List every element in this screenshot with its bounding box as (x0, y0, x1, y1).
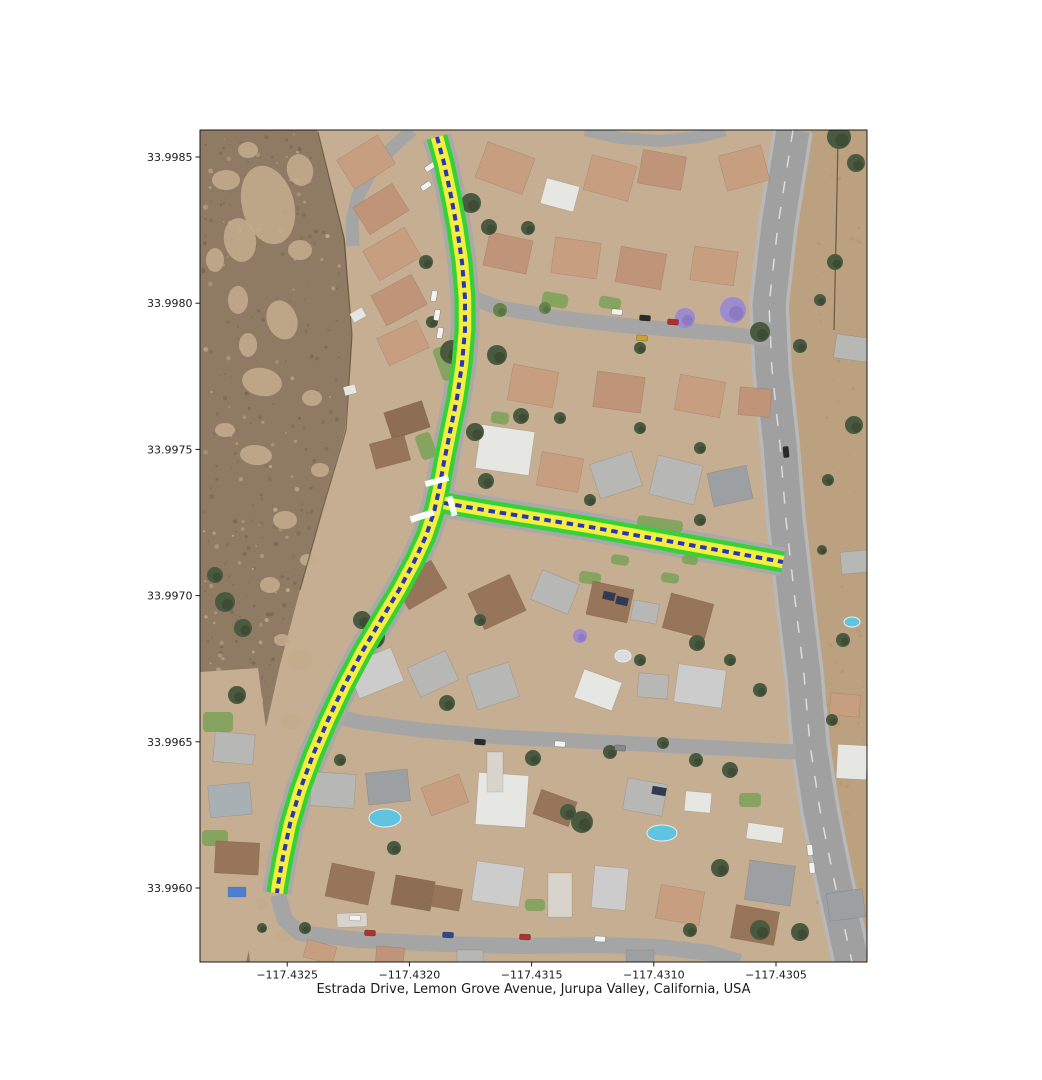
y-tick-label: 33.9970 (147, 590, 193, 603)
tree-shade (531, 756, 540, 765)
rock-outcrop (215, 423, 235, 437)
house-roof (551, 237, 602, 279)
house-roof (655, 884, 704, 925)
tree-shade (821, 549, 827, 555)
house-roof (536, 452, 583, 493)
tree-shade (213, 573, 222, 582)
house-roof (487, 752, 503, 792)
tree-shade (798, 344, 806, 352)
tree-shade (661, 741, 668, 748)
tree-shade (853, 160, 863, 170)
rock-outcrop (274, 634, 290, 646)
rock-outcrop (206, 248, 224, 272)
car (519, 934, 530, 940)
house-roof (471, 861, 524, 907)
tree-shade (728, 658, 735, 665)
house-roof (744, 860, 795, 906)
house-roof (591, 866, 629, 911)
car (349, 915, 360, 921)
tree-shade (579, 819, 591, 831)
x-tick-label: −117.4310 (623, 969, 685, 982)
y-tick-label: 33.9975 (147, 443, 193, 456)
tree-shade (543, 306, 550, 313)
tree-shade (222, 599, 233, 610)
house-roof (615, 246, 667, 289)
tree-shade (392, 846, 400, 854)
rock-outcrop (212, 170, 240, 190)
x-tick-label: −117.4305 (745, 969, 807, 982)
x-tick-label: −117.4315 (501, 969, 563, 982)
rock-outcrop (288, 651, 312, 669)
tree-shade (694, 758, 702, 766)
tree-shade (588, 498, 595, 505)
rock-outcrop (239, 333, 257, 357)
swimming-pool (369, 809, 401, 827)
rock-outcrop (311, 463, 329, 477)
tree-shade (494, 352, 505, 363)
tree-shade (566, 810, 575, 819)
tree-shade (682, 315, 693, 326)
house-roof (365, 769, 410, 805)
house-roof (630, 600, 659, 624)
rock-outcrop (288, 240, 312, 260)
tree-shade (757, 927, 768, 938)
swimming-pool (844, 617, 860, 627)
tree-shade (757, 329, 768, 340)
tree-shade (498, 308, 506, 316)
house-roof (684, 791, 712, 813)
car (639, 315, 650, 322)
house-roof (208, 782, 253, 818)
rock-outcrop (280, 715, 300, 729)
tree-shade (303, 926, 310, 933)
house-roof (674, 374, 726, 417)
tree-shade (234, 692, 244, 702)
house-roof (833, 334, 870, 362)
aerial-map-image (200, 125, 872, 965)
house-roof (623, 778, 668, 816)
house-roof (475, 424, 535, 475)
house-roof (228, 887, 246, 897)
tree-shade (826, 478, 833, 485)
swimming-pool (647, 825, 677, 841)
car (594, 936, 605, 942)
tree-shade (638, 658, 645, 665)
tree-shade (484, 479, 493, 488)
lawn-patch (525, 899, 545, 911)
tree-shade (487, 225, 496, 234)
y-tick-label: 33.9980 (147, 297, 193, 310)
x-tick-label: −117.4325 (256, 969, 318, 982)
house-roof (375, 946, 404, 964)
tree-shade (472, 429, 482, 439)
house-roof (826, 889, 866, 922)
tree-shade (717, 865, 727, 875)
car (783, 446, 790, 457)
house-roof (674, 664, 727, 708)
house-roof (548, 873, 572, 917)
house-roof (690, 246, 738, 286)
house-roof (310, 772, 356, 809)
car (442, 932, 453, 938)
tree-shade (851, 422, 861, 432)
tree-shade (261, 927, 267, 933)
tree-shade (698, 518, 705, 525)
lawn-patch (203, 712, 233, 732)
swimming-pool (615, 650, 631, 662)
car (364, 930, 375, 936)
tree-shade (638, 346, 645, 353)
house-roof (507, 364, 559, 407)
car (667, 319, 678, 326)
house-roof (213, 731, 255, 764)
figure-window: −117.4325−117.4320−117.4315−117.4310−117… (0, 0, 1042, 1080)
car (809, 862, 816, 873)
x-tick-label: −117.4320 (379, 969, 441, 982)
rock-outcrop (273, 511, 297, 529)
car (807, 844, 814, 855)
tree-shade (424, 260, 432, 268)
rock-outcrop (260, 577, 280, 593)
tree-shade (430, 320, 437, 327)
plot-title: Estrada Drive, Lemon Grove Avenue, Jurup… (316, 982, 750, 997)
tree-shade (338, 758, 345, 765)
tree-shade (833, 260, 842, 269)
tree-shade (688, 928, 696, 936)
rock-outcrop (302, 390, 322, 406)
tree-shade (578, 634, 586, 642)
tree-shade (608, 750, 616, 758)
tree-shade (519, 414, 528, 423)
house-roof (738, 387, 772, 418)
house-roof (836, 744, 868, 780)
tree-shade (468, 200, 479, 211)
tree-shade (818, 298, 825, 305)
house-roof (431, 885, 462, 912)
lawn-patch (739, 793, 761, 807)
y-tick-label: 33.9965 (147, 736, 193, 749)
tree-shade (695, 641, 704, 650)
house-roof (637, 149, 686, 190)
car (554, 741, 565, 748)
tree-shade (830, 718, 837, 725)
tree-shade (729, 306, 743, 320)
car (611, 309, 622, 316)
car (474, 739, 485, 746)
tree-shade (758, 688, 766, 696)
car (636, 335, 647, 342)
house-roof (593, 371, 646, 413)
tree-shade (797, 929, 807, 939)
rock-outcrop (228, 286, 248, 314)
car (614, 745, 625, 752)
tree-shade (445, 701, 454, 710)
y-tick-label: 33.9985 (147, 151, 193, 164)
tree-shade (558, 416, 565, 423)
tree-shade (526, 226, 534, 234)
tree-shade (478, 618, 485, 625)
tree-shade (728, 768, 737, 777)
tree-shade (638, 426, 645, 433)
tree-shade (240, 625, 250, 635)
y-tick-label: 33.9960 (147, 882, 193, 895)
house-roof (637, 673, 669, 700)
house-roof (829, 693, 861, 718)
tree-shade (698, 446, 705, 453)
rock-outcrop (238, 142, 258, 158)
map-figure: −117.4325−117.4320−117.4315−117.4310−117… (0, 0, 1042, 1080)
tree-shade (841, 638, 849, 646)
house-roof (214, 841, 260, 875)
tree-shade (835, 133, 848, 146)
house-roof (391, 875, 436, 911)
